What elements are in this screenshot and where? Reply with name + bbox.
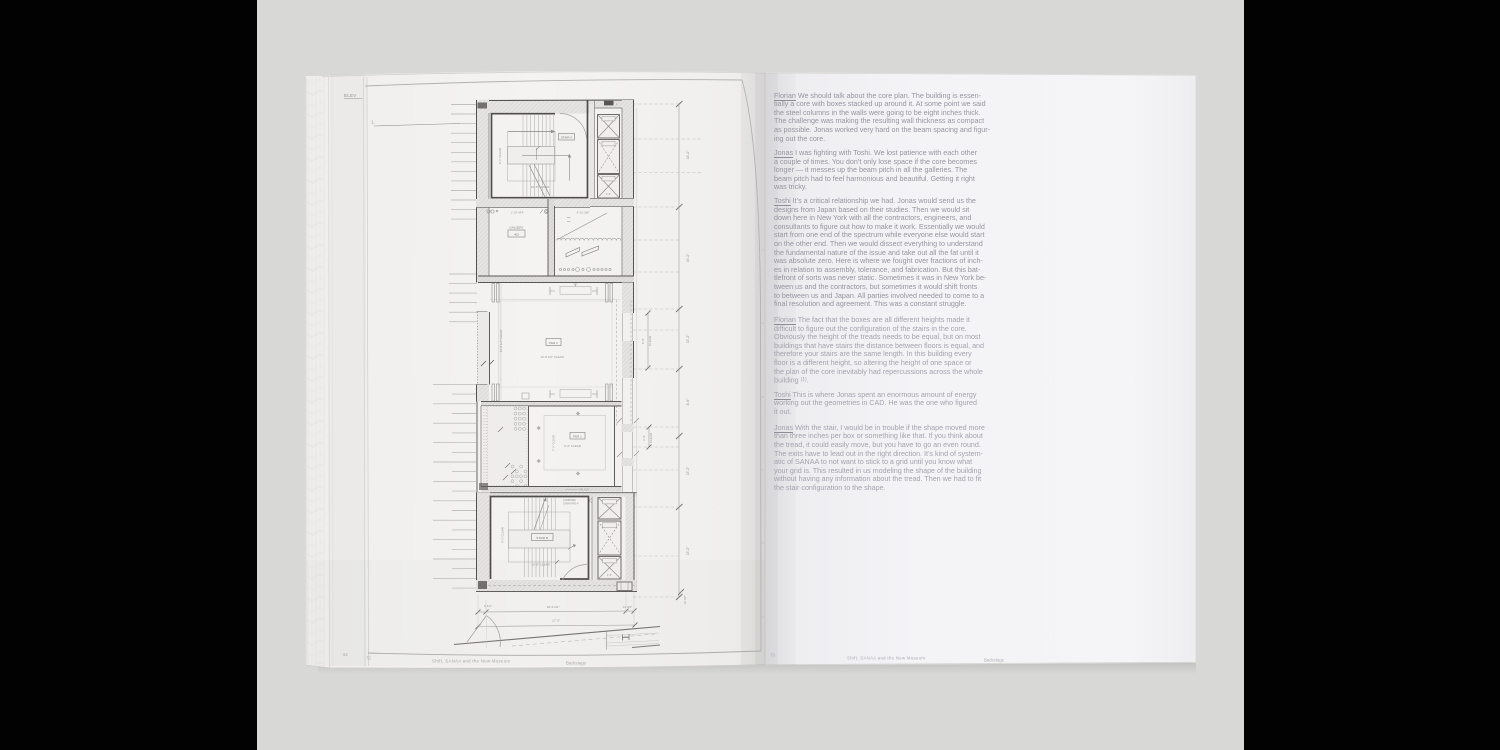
svg-text:1’-10” AFF: 1’-10” AFF [510, 211, 523, 215]
svg-text:FIN. FLR: FIN. FLR [579, 490, 589, 492]
svg-text:1.: 1. [371, 120, 375, 125]
svg-text:15’-2”: 15’-2” [686, 547, 690, 556]
svg-text:15’-2”: 15’-2” [686, 467, 690, 476]
svg-text:2’-6”: 2’-6” [607, 573, 612, 577]
svg-text:10’-8” CLEAR: 10’-8” CLEAR [531, 563, 550, 567]
svg-text:402: 402 [514, 232, 519, 236]
svg-text:PER 1: PER 1 [573, 435, 582, 439]
svg-text:17’-3”: 17’-3” [552, 619, 560, 623]
svg-text:Shift, SANAA and the New Museu: Shift, SANAA and the New Museum [847, 656, 925, 661]
svg-text:6’-10 3/8”: 6’-10 3/8” [577, 211, 590, 215]
svg-text:CLEAR: CLEAR [649, 432, 653, 443]
svg-text:PER 2: PER 2 [549, 341, 558, 345]
svg-text:62: 62 [343, 652, 348, 657]
svg-text:Backstage: Backstage [984, 658, 1005, 663]
svg-text:GALLERY: GALLERY [509, 226, 523, 230]
svg-text:STAIR PIPE 4”: STAIR PIPE 4” [563, 503, 579, 506]
svg-text:10 3/8”: 10 3/8” [683, 595, 687, 604]
svg-text:Shift, SANAA and the New Museu: Shift, SANAA and the New Museum [432, 659, 510, 664]
svg-text:72: 72 [366, 656, 371, 661]
svg-text:16’-2”: 16’-2” [686, 254, 690, 263]
svg-text:9 1/4”: 9 1/4” [484, 604, 492, 608]
svg-text:8’-6”: 8’-6” [686, 399, 690, 406]
svg-text:9’-2” CLEAR: 9’-2” CLEAR [564, 444, 582, 448]
svg-text:7’-6” CLEAR: 7’-6” CLEAR [552, 435, 556, 451]
svg-text:16’-2”: 16’-2” [686, 151, 690, 160]
svg-text:STAIR B: STAIR B [536, 536, 548, 540]
svg-text:STAIR A: STAIR A [561, 135, 572, 139]
svg-text:73: 73 [770, 653, 775, 658]
svg-text:13’-8 1/2” CLEAR: 13’-8 1/2” CLEAR [540, 355, 564, 359]
svg-text:9’-1” CLEAR: 9’-1” CLEAR [498, 148, 502, 164]
svg-text:2’-6”: 2’-6” [606, 192, 611, 196]
svg-text:Backstage: Backstage [566, 661, 587, 666]
svg-text:9’-1” CLEAR: 9’-1” CLEAR [501, 527, 505, 543]
svg-text:3’-6”: 3’-6” [642, 435, 646, 441]
svg-text:15’-2”: 15’-2” [686, 335, 690, 344]
svg-text:13’-8 1/2” CLEAR: 13’-8 1/2” CLEAR [499, 330, 503, 353]
svg-text:10’-8” CLEAR: 10’-8” CLEAR [531, 185, 550, 189]
svg-text:8’-6”: 8’-6” [641, 338, 645, 344]
svg-text:11 3/4”: 11 3/4” [623, 605, 632, 609]
svg-text:ELEV: ELEV [344, 93, 357, 98]
svg-text:18’-6 1/2”: 18’-6 1/2” [547, 605, 560, 609]
svg-text:CLEAR: CLEAR [648, 335, 652, 346]
